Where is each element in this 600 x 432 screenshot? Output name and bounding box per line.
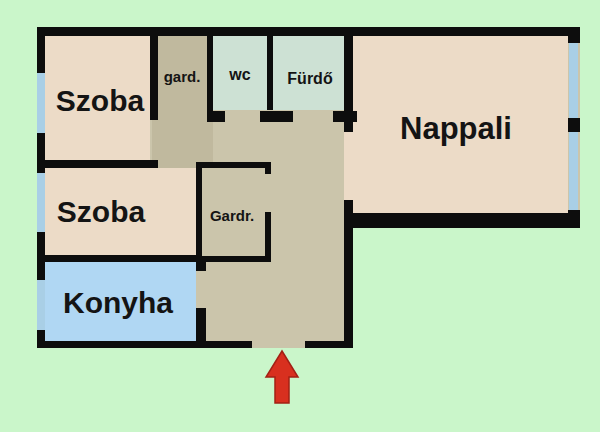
gardr-right-wall-stub (265, 162, 271, 174)
wc-furdo-bottom-segment (260, 111, 293, 122)
wc-label: wc (212, 67, 268, 83)
outer-top-wall (37, 27, 580, 36)
gardr-right-wall (265, 212, 271, 262)
right-wall-bottom-corner (568, 210, 580, 228)
konyha-label: Konyha (48, 288, 188, 318)
szoba-divider-wall (37, 160, 158, 168)
right-wall-top-corner (568, 27, 580, 43)
gard-label: gard. (155, 69, 209, 84)
szoba-2-label: Szoba (42, 197, 160, 227)
furdo-label: Fürdő (273, 71, 347, 87)
szoba-1-label: Szoba (45, 86, 155, 116)
outer-left-wall-seg1 (37, 27, 45, 73)
konyha-window (37, 280, 45, 330)
nappali-bottom-wall (344, 213, 580, 228)
entrance-arrow (263, 349, 301, 409)
gardr-top-wall (196, 162, 271, 168)
szoba2-konyha-divider-wall (37, 255, 202, 262)
nappali-window-top (569, 43, 578, 118)
right-wall-mullion (568, 118, 580, 132)
gardr-label: Gardr. (199, 208, 265, 223)
bottom-wall-left (37, 341, 252, 348)
gardr-bottom-wall (196, 256, 271, 262)
nappali-window-bottom (569, 132, 578, 210)
wc-door-stub-left (207, 111, 225, 122)
floor-plan: Szoba Szoba Konyha gard. wc Fürdő Nappal… (0, 0, 600, 432)
nappali-label: Nappali (358, 113, 554, 144)
furdo-door-stub-right (333, 111, 357, 122)
konyha-right-wall (196, 308, 206, 348)
gard-corridor-floor (152, 36, 213, 168)
szoba-1-window (37, 73, 45, 133)
entrance-arrow-icon (263, 349, 301, 405)
konyha-right-wall-stub (196, 262, 206, 271)
